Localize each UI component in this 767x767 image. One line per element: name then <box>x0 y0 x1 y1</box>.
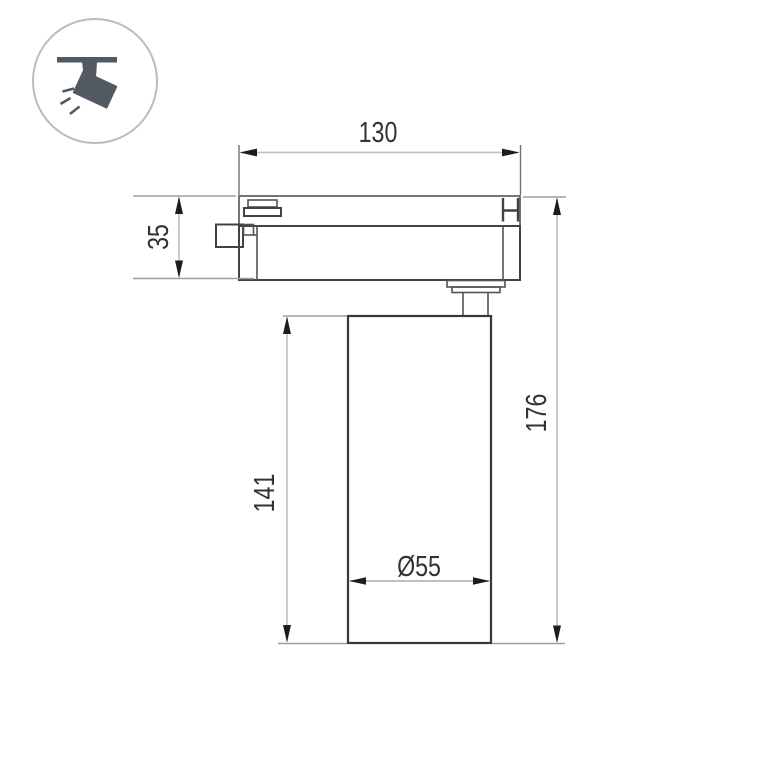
lamp-body-cylinder <box>348 316 491 643</box>
joint-flange-upper <box>447 281 505 288</box>
dim-width-label: 130 <box>359 115 398 148</box>
dim-head-height-label: 141 <box>247 474 280 513</box>
dimension-adapter-height: 35 <box>133 196 254 279</box>
contact-clip-upper <box>248 200 277 207</box>
dim-diameter-label: Ø55 <box>397 549 441 582</box>
fixture-outline <box>216 196 520 643</box>
icon-track-bar <box>57 57 117 63</box>
end-bracket <box>503 198 518 222</box>
contact-clip-lower <box>244 208 281 216</box>
joint-stem <box>463 293 488 317</box>
adapter-housing <box>239 226 520 280</box>
dimension-drawing-svg: 130 35 141 176 <box>0 0 767 767</box>
dimension-diameter: Ø55 <box>349 549 490 584</box>
dimension-drawing-page: 130 35 141 176 <box>0 0 767 767</box>
dim-adapter-height-label: 35 <box>141 224 174 250</box>
dimension-head-height: 141 <box>247 316 347 644</box>
track-spotlight-icon <box>33 19 157 143</box>
dim-total-height-label: 176 <box>519 394 552 433</box>
joint-flange-lower <box>452 287 500 293</box>
dimension-width: 130 <box>239 115 521 195</box>
